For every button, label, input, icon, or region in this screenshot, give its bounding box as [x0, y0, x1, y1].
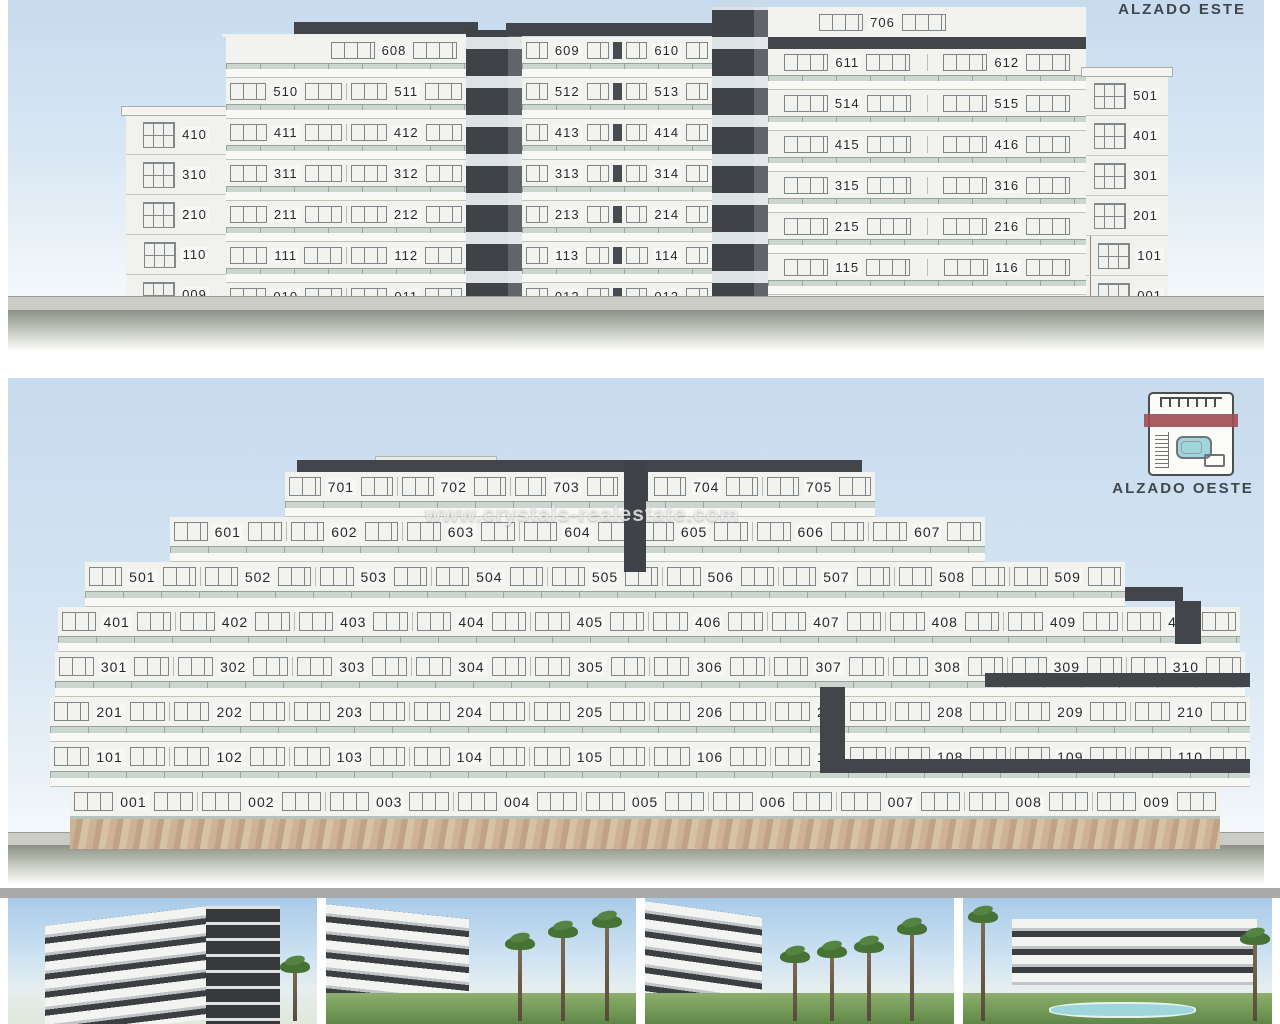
east-terrain: [8, 310, 1264, 352]
window: [784, 177, 828, 194]
unit-number: 301: [1131, 168, 1160, 183]
window: [1127, 612, 1161, 631]
window: [587, 206, 609, 223]
unit-number: 702: [439, 479, 469, 495]
floor-row: 215216: [768, 213, 1086, 239]
unit-number: 408: [930, 614, 960, 630]
floor-row: 401402403404405406407408409410: [58, 607, 1240, 636]
floor-row: 611612: [768, 49, 1086, 75]
window: [857, 567, 890, 586]
unit-number: 508: [937, 569, 967, 585]
east-stair-core-right: [712, 7, 768, 310]
window: [143, 162, 175, 188]
render-photo-corner-view: [8, 898, 317, 1024]
unit-cell: 301: [55, 657, 173, 676]
unit-number: 001: [118, 794, 148, 810]
window: [526, 165, 548, 182]
window: [586, 247, 608, 264]
window: [626, 83, 648, 100]
west-dark-accent: [820, 759, 1250, 773]
building-render: [206, 906, 280, 1024]
window: [1026, 218, 1070, 235]
small-building-icon: [1204, 454, 1225, 467]
unit-number: 002: [246, 794, 276, 810]
unit-cell: 507: [778, 567, 894, 586]
window: [969, 792, 1008, 811]
unit-cell: 008: [964, 792, 1092, 811]
window: [515, 477, 547, 496]
window: [526, 206, 548, 223]
window: [654, 747, 689, 766]
window: [299, 612, 333, 631]
window: [351, 247, 388, 264]
unit-number: 612: [992, 55, 1021, 70]
unit-cell: 510: [226, 83, 346, 100]
window: [730, 747, 765, 766]
window: [526, 247, 548, 264]
window: [610, 747, 645, 766]
floor-row: 113114: [522, 242, 712, 268]
window: [351, 124, 387, 141]
unit-number: 307: [813, 659, 843, 675]
window: [1088, 567, 1121, 586]
window: [534, 747, 569, 766]
window: [305, 206, 342, 223]
window: [552, 567, 585, 586]
balcony-slab: [768, 198, 1086, 213]
window: [282, 792, 321, 811]
floor-row: 514515: [768, 90, 1086, 116]
window: [426, 124, 462, 141]
unit-cell: 705: [762, 477, 875, 496]
east-elevation-panel: ALZADO ESTE 410310210110009 608510511411…: [8, 0, 1264, 352]
window: [775, 702, 810, 721]
window: [351, 165, 387, 182]
window: [767, 477, 799, 496]
window: [414, 702, 449, 721]
lawn: [326, 993, 635, 1024]
balcony-slab: [170, 546, 985, 562]
window: [902, 14, 946, 31]
unit-cell: 212: [346, 206, 467, 223]
window: [230, 165, 267, 182]
window: [490, 747, 525, 766]
window: [320, 567, 353, 586]
unit-cell: 416: [927, 136, 1087, 153]
unit-cell: 205: [529, 702, 649, 721]
window: [943, 95, 987, 112]
window: [143, 202, 175, 228]
stone-base: [70, 816, 1220, 849]
swimming-pool: [1049, 1002, 1195, 1017]
window: [474, 477, 506, 496]
unit-number: 409: [1048, 614, 1078, 630]
unit-number: 103: [335, 749, 365, 765]
window: [587, 165, 609, 182]
unit-cell: 414: [613, 124, 713, 141]
unit-cell: 702: [397, 477, 510, 496]
unit-cell: 208: [890, 702, 1010, 721]
palm-tree: [981, 921, 985, 1022]
window: [893, 657, 928, 676]
window: [89, 567, 122, 586]
window: [54, 702, 89, 721]
window: [526, 124, 548, 141]
photo-strip: [0, 888, 1280, 1024]
unit-number: 414: [652, 125, 681, 140]
window: [174, 702, 209, 721]
unit-cell: 204: [409, 702, 529, 721]
window: [492, 657, 527, 676]
unit-number: 110: [181, 247, 209, 262]
window: [372, 657, 407, 676]
window: [426, 165, 462, 182]
unit-number: 208: [935, 704, 965, 720]
unit-number: 009: [1141, 794, 1171, 810]
unit-cell: 512: [522, 83, 613, 100]
unit-number: 005: [630, 794, 660, 810]
unit-number: 210: [1175, 704, 1205, 720]
window: [426, 206, 462, 223]
balcony-slab: [522, 63, 712, 78]
unit-number: 206: [695, 704, 725, 720]
window: [425, 83, 462, 100]
window: [1026, 136, 1070, 153]
window: [373, 612, 407, 631]
stairs-hatch-icon: [1155, 432, 1169, 468]
window: [537, 792, 576, 811]
window: [1008, 612, 1042, 631]
west-dark-accent: [985, 673, 1250, 687]
unit-number: 610: [652, 43, 681, 58]
window: [626, 165, 648, 182]
window: [784, 259, 828, 276]
window: [361, 477, 393, 496]
lawn: [645, 993, 954, 1024]
unit-number: 413: [553, 125, 582, 140]
unit-number: 314: [652, 166, 681, 181]
window: [839, 477, 871, 496]
unit-number: 512: [553, 84, 582, 99]
balcony-slab: [226, 104, 466, 119]
unit-cell: 415: [768, 136, 927, 153]
window: [653, 612, 687, 631]
render-photo-palms-right: [326, 898, 635, 1024]
west-floor-band: 401402403404405406407408409410: [58, 607, 1240, 652]
window: [654, 657, 689, 676]
unit-number: 102: [214, 749, 244, 765]
window: [458, 792, 497, 811]
watermark: www.crystals-realestate.com: [0, 503, 1164, 527]
window: [1202, 612, 1236, 631]
window: [611, 657, 646, 676]
floor-row: 311312: [226, 160, 466, 186]
balcony-slab: [768, 239, 1086, 254]
window: [587, 42, 609, 59]
window: [1026, 54, 1070, 71]
balcony-slab: [768, 280, 1086, 295]
window: [1094, 203, 1126, 229]
balcony-slab: [226, 186, 466, 201]
east-ground-plinth: [8, 296, 1264, 310]
window: [394, 567, 427, 586]
window: [526, 83, 548, 100]
unit-cell: 611: [768, 54, 927, 71]
window: [134, 657, 169, 676]
unit-number: 201: [1131, 208, 1160, 223]
window: [867, 136, 911, 153]
unit-number: 113: [553, 248, 581, 263]
unit-cell: 304: [411, 657, 530, 676]
unit-cell: 703: [510, 477, 623, 496]
tower-floor: 401: [1086, 116, 1168, 156]
unit-number: 214: [652, 207, 681, 222]
unit-number: 706: [868, 15, 897, 30]
unit-cell: 501: [85, 567, 200, 586]
unit-cell: 509: [1009, 567, 1125, 586]
east-building-drawing: 410310210110009 608510511411412311312211…: [112, 0, 1168, 310]
window: [534, 702, 569, 721]
window: [253, 657, 288, 676]
photo-row: [0, 898, 1280, 1024]
window: [409, 792, 448, 811]
unit-cell: 303: [292, 657, 411, 676]
window: [1049, 792, 1088, 811]
window: [970, 702, 1005, 721]
unit-cell: 305: [530, 657, 649, 676]
unit-cell: 102: [169, 747, 289, 766]
unit-cell: 106: [649, 747, 769, 766]
window: [772, 612, 806, 631]
window: [921, 792, 960, 811]
window: [654, 702, 689, 721]
unit-number: 303: [337, 659, 367, 675]
balcony-slab: [50, 771, 1250, 787]
window: [250, 702, 285, 721]
window: [278, 567, 311, 586]
tower-floor: 201: [1086, 196, 1168, 236]
window: [586, 792, 625, 811]
building-render: [45, 906, 206, 1024]
west-dark-accent: [1175, 601, 1201, 644]
unit-number: 202: [214, 704, 244, 720]
floor-row: 608: [226, 37, 466, 63]
render-photo-garden-view: [645, 898, 954, 1024]
unit-cell: 211: [226, 206, 346, 223]
unit-number: 404: [456, 614, 486, 630]
unit-cell: 116: [927, 259, 1087, 276]
window: [59, 657, 94, 676]
unit-cell: 215: [768, 218, 927, 235]
window: [686, 42, 708, 59]
window: [1083, 612, 1117, 631]
unit-number: 312: [392, 166, 421, 181]
window: [1014, 567, 1047, 586]
window: [972, 567, 1005, 586]
unit-number: 510: [271, 84, 300, 99]
unit-cell: 701: [285, 477, 397, 496]
unit-cell: 101: [50, 747, 169, 766]
tower-floor: 310: [126, 155, 226, 195]
window: [943, 218, 987, 235]
window: [1015, 702, 1050, 721]
unit-cell: 511: [346, 83, 467, 100]
unit-number: 503: [359, 569, 389, 585]
unit-number: 205: [575, 704, 605, 720]
west-dark-accent: [1125, 587, 1183, 601]
window: [144, 242, 176, 268]
balcony-slab: [50, 726, 1250, 742]
window: [526, 42, 548, 59]
unit-cell: 114: [613, 247, 713, 264]
window: [728, 612, 762, 631]
unit-number: 315: [833, 178, 862, 193]
unit-cell: 112: [346, 247, 467, 264]
window: [626, 124, 648, 141]
window: [143, 122, 175, 148]
window: [867, 95, 911, 112]
palm-tree: [605, 926, 609, 1022]
unit-cell: 409: [1003, 612, 1121, 631]
unit-number: 412: [392, 125, 421, 140]
window: [686, 206, 708, 223]
window: [626, 42, 648, 59]
window: [686, 124, 708, 141]
floor-row: 701702703704705: [285, 472, 875, 501]
window: [414, 747, 449, 766]
unit-cell: 515: [927, 95, 1087, 112]
window: [965, 612, 999, 631]
unit-number: 402: [220, 614, 250, 630]
unit-number: 514: [833, 96, 862, 111]
window: [1090, 702, 1125, 721]
unit-number: 502: [243, 569, 273, 585]
window: [202, 792, 241, 811]
window: [784, 218, 828, 235]
unit-number: 505: [590, 569, 620, 585]
floor-row: 111112: [226, 242, 466, 268]
window: [890, 612, 924, 631]
unit-number: 501: [1131, 88, 1160, 103]
window: [943, 177, 987, 194]
unit-number: 511: [392, 84, 420, 99]
window: [730, 657, 765, 676]
floor-row: 313314: [522, 160, 712, 186]
floor-row: 413414: [522, 119, 712, 145]
window: [1135, 702, 1170, 721]
unit-number: 003: [374, 794, 404, 810]
unit-cell: 004: [453, 792, 581, 811]
unit-cell: 706: [781, 14, 985, 31]
window: [866, 54, 910, 71]
window: [841, 792, 880, 811]
floor-row: 510511: [226, 78, 466, 104]
east-middle-block: 6096105125134134143133142132141131140120…: [522, 37, 712, 310]
balcony-slab: [522, 145, 712, 160]
window: [1026, 177, 1070, 194]
unit-number: 310: [180, 167, 209, 182]
site-plan-icon: [1148, 392, 1234, 476]
window: [665, 792, 704, 811]
window: [330, 792, 369, 811]
window: [205, 567, 238, 586]
palm-tree: [561, 936, 565, 1022]
balcony-slab: [226, 227, 466, 242]
unit-cell: 210: [1130, 702, 1250, 721]
unit-cell: 403: [294, 612, 412, 631]
window: [1094, 123, 1126, 149]
unit-cell: 115: [768, 259, 927, 276]
unit-cell: 514: [768, 95, 927, 112]
window: [895, 702, 930, 721]
window: [1098, 243, 1130, 269]
unit-number: 106: [695, 749, 725, 765]
west-floor-band: 501502503504505506507508509: [85, 562, 1125, 607]
unit-number: 416: [992, 137, 1021, 152]
unit-number: 415: [833, 137, 862, 152]
window: [1026, 95, 1070, 112]
window: [847, 612, 881, 631]
window: [849, 657, 884, 676]
unit-cell: 513: [613, 83, 713, 100]
window: [587, 83, 609, 100]
window: [774, 657, 809, 676]
window: [54, 747, 89, 766]
tower-floor: 110: [126, 235, 226, 275]
window: [62, 612, 96, 631]
photo-strip-divider: [0, 888, 1280, 898]
tower-floor: 210: [126, 195, 226, 235]
window: [490, 702, 525, 721]
tower-floor: 501: [1086, 76, 1168, 116]
unit-number: 201: [94, 704, 124, 720]
window: [867, 177, 911, 194]
window: [230, 124, 267, 141]
unit-cell: 302: [173, 657, 292, 676]
east-stair-core-left: [466, 30, 522, 310]
window: [726, 477, 758, 496]
window: [289, 477, 321, 496]
floor-row: 201202203204205206207208209210: [50, 697, 1250, 726]
roofline-icon: [1160, 397, 1222, 407]
window: [850, 702, 885, 721]
unit-number: 101: [94, 749, 124, 765]
window: [510, 567, 543, 586]
floor-row: 115116: [768, 254, 1086, 280]
window: [178, 657, 213, 676]
unit-cell: 508: [894, 567, 1010, 586]
unit-number: 608: [380, 43, 409, 58]
unit-number: 411: [272, 125, 300, 140]
palm-tree: [830, 956, 834, 1022]
window: [130, 702, 165, 721]
unit-cell: 506: [662, 567, 778, 586]
unit-cell: 306: [649, 657, 768, 676]
balcony-slab: [522, 104, 712, 119]
palm-tree: [518, 948, 522, 1021]
window: [535, 657, 570, 676]
window: [730, 702, 765, 721]
window: [436, 567, 469, 586]
tower-floor: 301: [1086, 156, 1168, 196]
window: [775, 747, 810, 766]
floor-row: 501502503504505506507508509: [85, 562, 1125, 591]
unit-number: 216: [992, 219, 1021, 234]
window: [793, 792, 832, 811]
unit-number: 311: [272, 166, 300, 181]
east-left-block: 608510511411412311312211212111112010011: [226, 37, 466, 310]
floor-row: 211212: [226, 201, 466, 227]
